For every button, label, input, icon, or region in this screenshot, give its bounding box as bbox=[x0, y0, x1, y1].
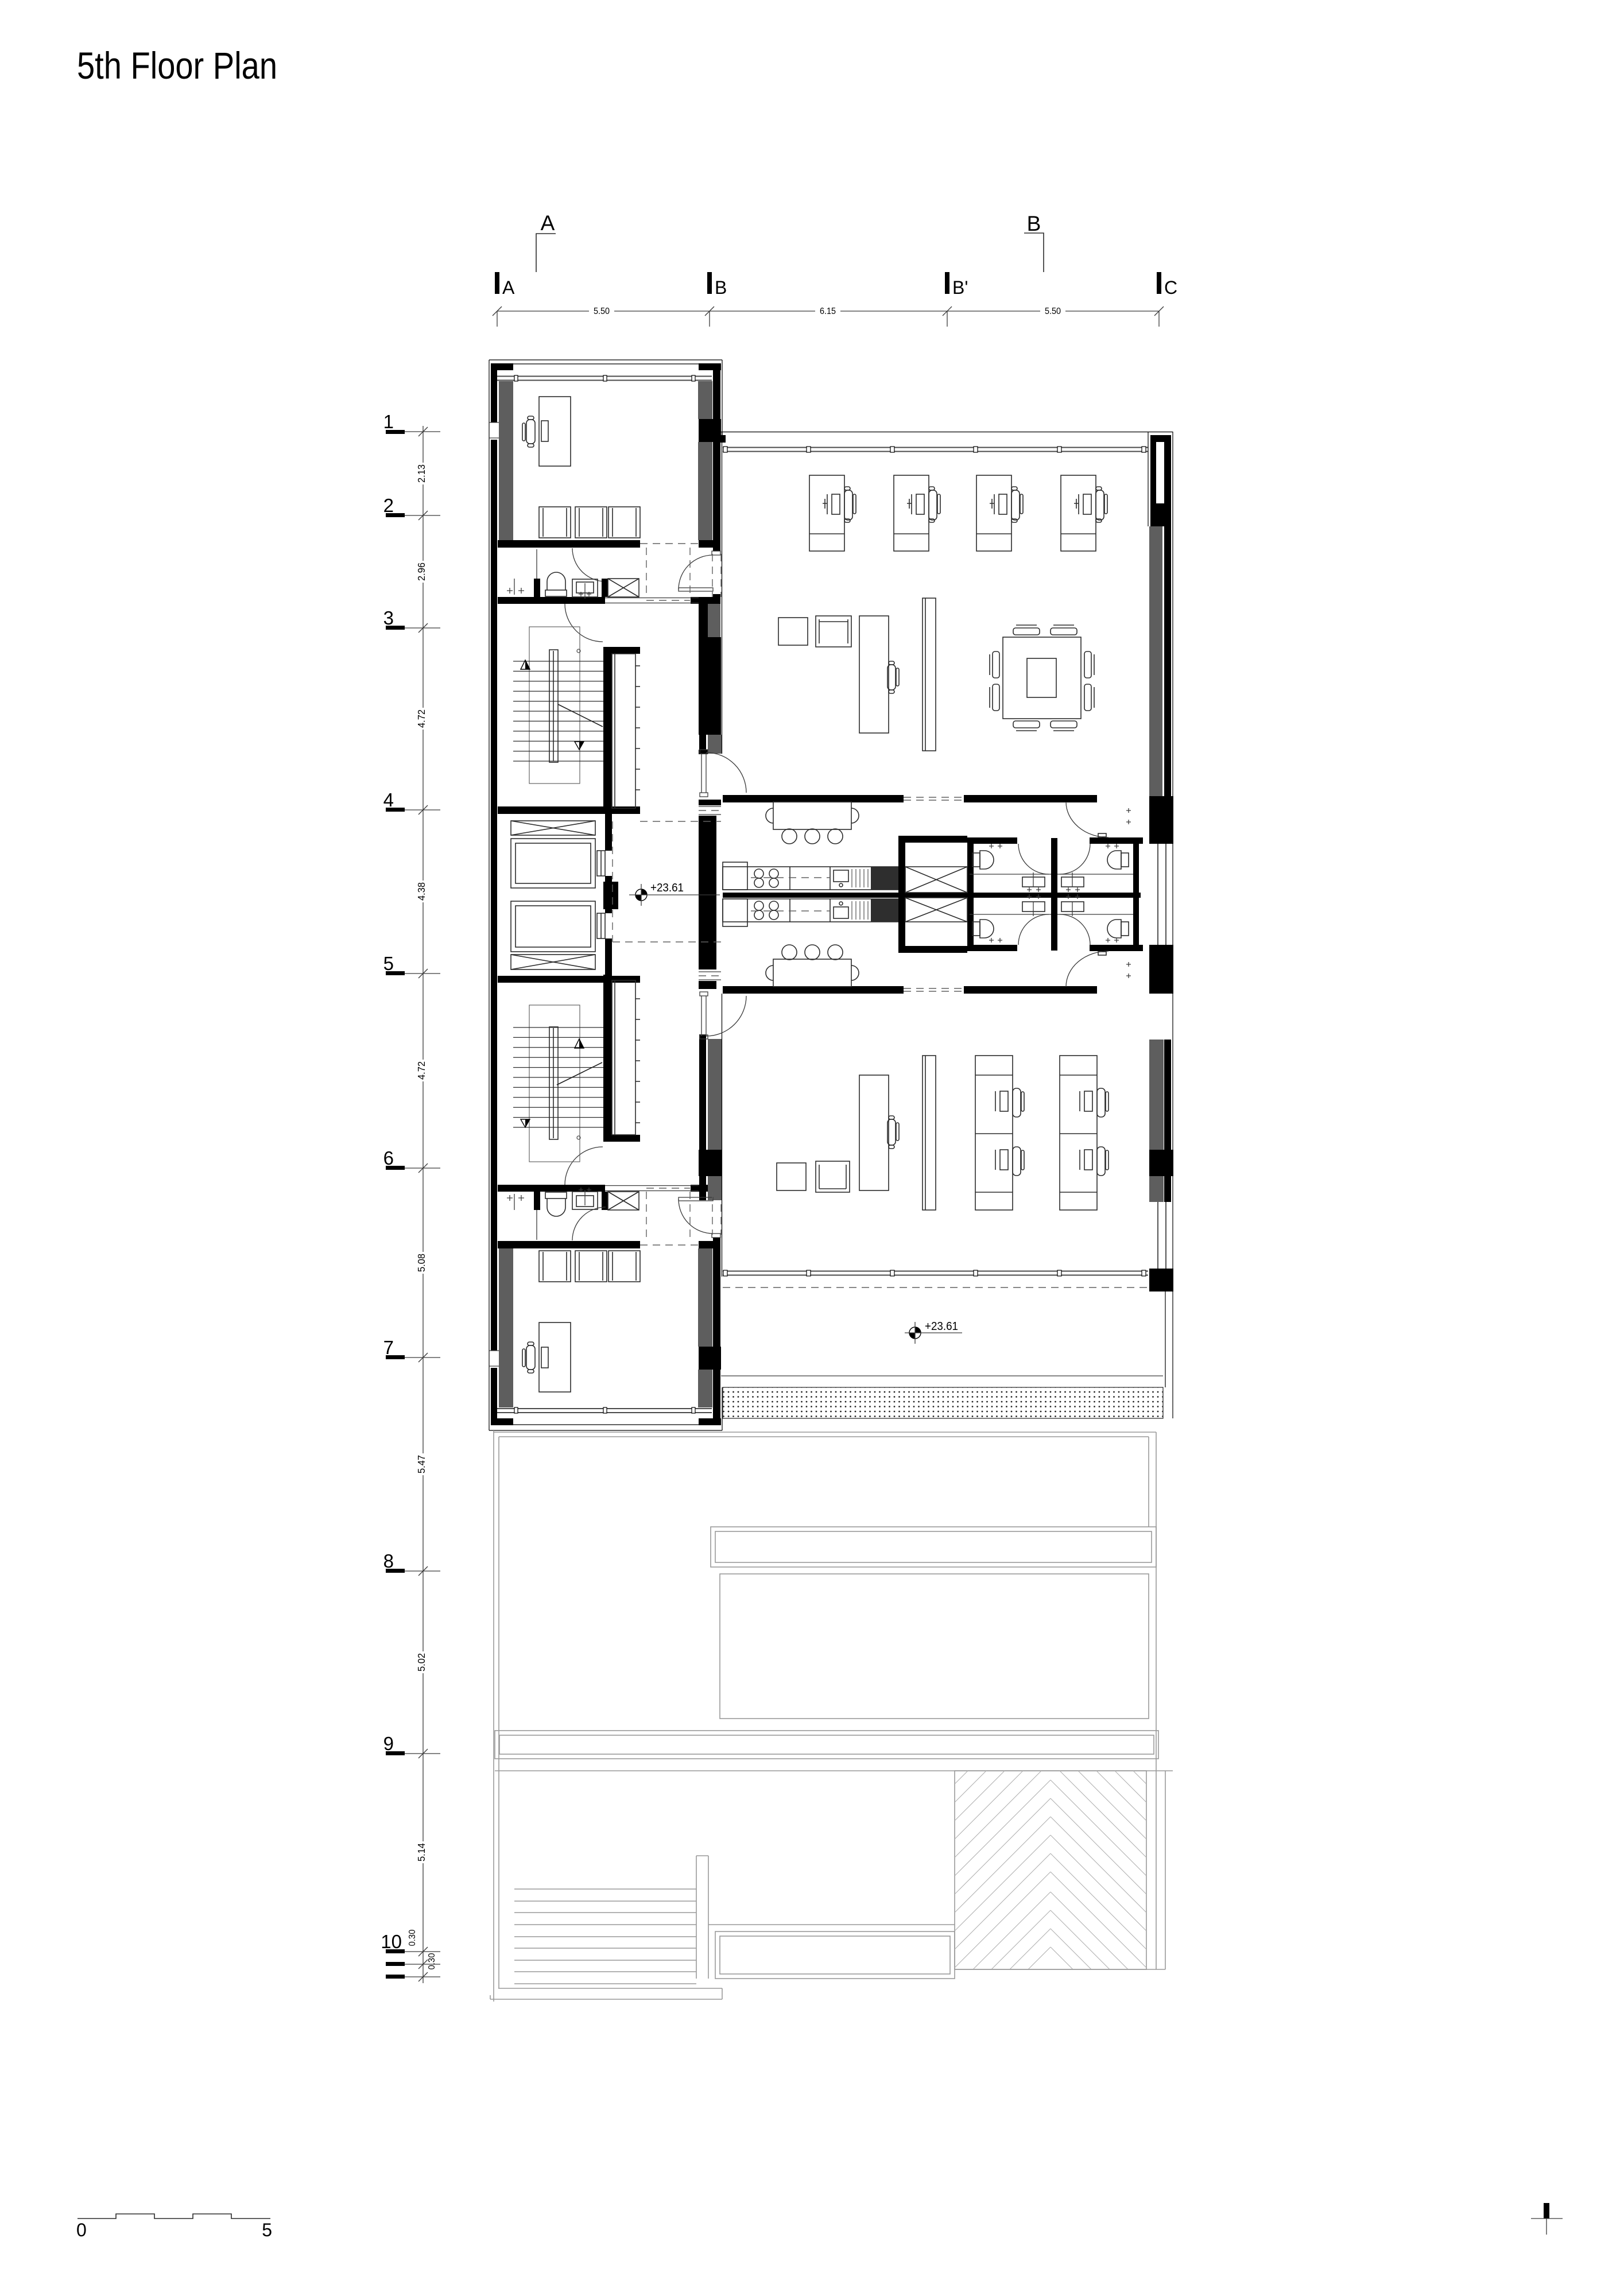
svg-text:5: 5 bbox=[262, 2220, 272, 2240]
svg-text:5.14: 5.14 bbox=[416, 1843, 427, 1861]
svg-text:2: 2 bbox=[383, 495, 394, 516]
svg-text:6.15: 6.15 bbox=[820, 307, 836, 316]
svg-text:5.50: 5.50 bbox=[594, 307, 610, 316]
svg-text:8: 8 bbox=[383, 1550, 394, 1572]
svg-text:5th Floor Plan: 5th Floor Plan bbox=[77, 44, 277, 87]
svg-text:10: 10 bbox=[381, 1931, 402, 1952]
svg-text:0.30: 0.30 bbox=[427, 1953, 437, 1969]
svg-text:0.30: 0.30 bbox=[408, 1929, 417, 1946]
svg-text:5.47: 5.47 bbox=[416, 1455, 427, 1473]
svg-text:B: B bbox=[715, 277, 727, 298]
svg-text:5.02: 5.02 bbox=[416, 1653, 427, 1671]
svg-text:5.08: 5.08 bbox=[416, 1254, 427, 1272]
svg-text:+23.61: +23.61 bbox=[925, 1320, 958, 1333]
svg-text:A: A bbox=[541, 211, 555, 235]
svg-text:7: 7 bbox=[383, 1337, 394, 1358]
svg-text:4.72: 4.72 bbox=[416, 1061, 427, 1080]
svg-text:C: C bbox=[1164, 277, 1177, 298]
svg-text:4.72: 4.72 bbox=[416, 709, 427, 728]
svg-text:2.13: 2.13 bbox=[416, 464, 427, 483]
svg-text:0: 0 bbox=[76, 2220, 87, 2240]
svg-text:2.96: 2.96 bbox=[416, 563, 427, 581]
svg-text:5: 5 bbox=[383, 953, 394, 974]
svg-text:B': B' bbox=[952, 277, 968, 298]
svg-text:3: 3 bbox=[383, 607, 394, 629]
svg-text:5.50: 5.50 bbox=[1045, 307, 1061, 316]
svg-text:9: 9 bbox=[383, 1733, 394, 1754]
svg-text:A: A bbox=[502, 277, 515, 298]
svg-text:+23.61: +23.61 bbox=[650, 882, 684, 894]
svg-text:4: 4 bbox=[383, 789, 394, 810]
svg-text:B: B bbox=[1027, 212, 1041, 235]
svg-text:1: 1 bbox=[383, 411, 394, 432]
svg-text:4.38: 4.38 bbox=[416, 882, 427, 901]
svg-text:6: 6 bbox=[383, 1147, 394, 1169]
